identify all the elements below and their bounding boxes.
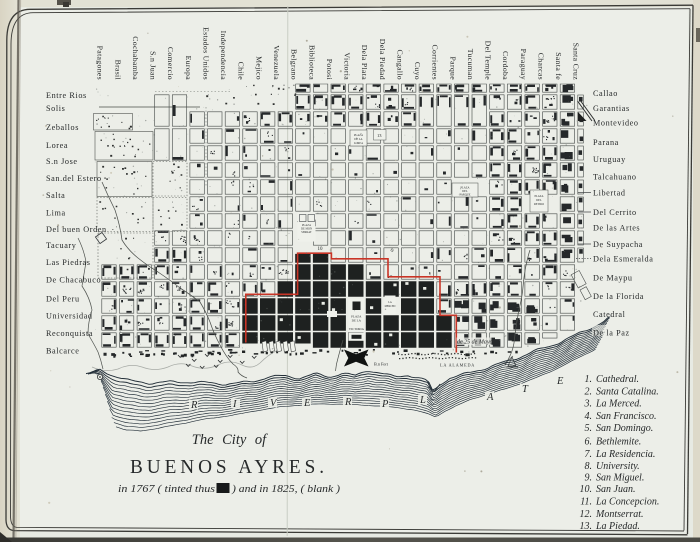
svg-text:S.n Juan: S.n Juan — [149, 51, 158, 80]
svg-text:University.: University. — [596, 461, 640, 472]
svg-text:Patagones: Patagones — [96, 46, 105, 80]
svg-text:Lorea: Lorea — [46, 141, 68, 150]
svg-text:Universidad: Universidad — [46, 312, 93, 321]
svg-text:Reconquista: Reconquista — [46, 329, 93, 338]
svg-text:De Maypu: De Maypu — [593, 274, 633, 283]
svg-text:Chile: Chile — [237, 62, 246, 81]
svg-text:Mejico: Mejico — [254, 56, 263, 80]
svg-text:Cangallo: Cangallo — [395, 49, 404, 80]
svg-text:Charcas: Charcas — [537, 53, 546, 80]
svg-text:Zeballos: Zeballos — [46, 123, 79, 132]
svg-text:Las Piedras: Las Piedras — [46, 258, 91, 267]
svg-text:7.: 7. — [585, 449, 593, 460]
svg-text:Del Temple: Del Temple — [484, 41, 493, 81]
svg-text:Salta: Salta — [46, 191, 65, 200]
svg-text:San Juan.: San Juan. — [596, 484, 635, 495]
svg-text:A: A — [486, 392, 494, 403]
svg-text:5.: 5. — [585, 423, 593, 434]
svg-text:Cathedral.: Cathedral. — [596, 374, 639, 385]
svg-text:Corrientes: Corrientes — [431, 45, 440, 80]
svg-text:Del Peru: Del Peru — [46, 295, 80, 304]
svg-text:Potosi: Potosi — [325, 59, 334, 81]
svg-text:San Francisco.: San Francisco. — [596, 411, 657, 422]
svg-text:3.: 3. — [584, 399, 593, 410]
svg-text:Balcarce: Balcarce — [46, 347, 79, 356]
svg-text:13.: 13. — [580, 521, 593, 532]
svg-text:De Chacabuco: De Chacabuco — [46, 276, 101, 285]
svg-text:DE LA: DE LA — [354, 138, 362, 141]
svg-text:P: P — [381, 399, 389, 410]
svg-text:Catedral: Catedral — [593, 310, 626, 319]
svg-text:Callao: Callao — [593, 89, 618, 98]
svg-text:Europa: Europa — [184, 56, 193, 81]
svg-text:LOREA: LOREA — [354, 142, 363, 145]
svg-text:Parana: Parana — [593, 138, 619, 147]
svg-text:DEL: DEL — [536, 199, 542, 202]
svg-text:B.n Fort: B.n Fort — [374, 362, 389, 367]
svg-text:8.: 8. — [585, 461, 593, 472]
svg-text:Paraguay: Paraguay — [519, 49, 528, 80]
svg-text:Dela Plata: Dela Plata — [360, 45, 369, 80]
svg-text:Cordoba: Cordoba — [501, 51, 510, 80]
svg-text:11.: 11. — [580, 497, 592, 508]
svg-text:Comercio: Comercio — [166, 47, 175, 80]
svg-text:in 1767 ( tinted thus: in 1767 ( tinted thus — [118, 483, 215, 495]
svg-text:VICTORIA: VICTORIA — [349, 327, 365, 331]
svg-text:Belgrano: Belgrano — [290, 49, 299, 80]
svg-text:10.: 10. — [580, 484, 593, 495]
svg-text:BUENOS AYRES.: BUENOS AYRES. — [130, 457, 328, 478]
svg-text:12.: 12. — [580, 509, 593, 520]
svg-text:LA: LA — [388, 301, 392, 304]
svg-text:Santa Cruz: Santa Cruz — [572, 43, 581, 81]
svg-text:La Residencia.: La Residencia. — [595, 449, 655, 460]
svg-text:Cuyo: Cuyo — [413, 62, 422, 80]
svg-text:DE LA: DE LA — [352, 319, 362, 323]
svg-text:Venezuela: Venezuela — [272, 45, 281, 80]
svg-text:SERRAT: SERRAT — [301, 231, 312, 234]
svg-text:Del Cerrito: Del Cerrito — [593, 208, 637, 217]
svg-text:Entre Rios: Entre Rios — [46, 91, 87, 100]
svg-text:de 25 de Mayo: de 25 de Mayo — [457, 340, 493, 346]
svg-text:San Miguel.: San Miguel. — [596, 473, 644, 484]
svg-text:Independencia: Independencia — [219, 31, 228, 81]
svg-text:Tucuman: Tucuman — [466, 49, 475, 80]
svg-text:PLAZA: PLAZA — [534, 195, 543, 198]
svg-text:Montevideo: Montevideo — [593, 119, 639, 128]
svg-text:De la Florida: De la Florida — [593, 292, 644, 301]
svg-text:Uruguay: Uruguay — [593, 155, 626, 164]
svg-text:Libertad: Libertad — [593, 189, 626, 198]
svg-text:Garantias: Garantias — [593, 104, 630, 113]
svg-text:Santa Catalina.: Santa Catalina. — [596, 387, 659, 398]
svg-text:Bethlemite.: Bethlemite. — [596, 437, 641, 448]
svg-text:San Domingo.: San Domingo. — [596, 423, 653, 434]
svg-text:RETIRO: RETIRO — [534, 203, 544, 206]
svg-text:De Suypacha: De Suypacha — [593, 240, 643, 249]
svg-text:R: R — [344, 397, 352, 408]
svg-text:Solis: Solis — [46, 104, 65, 113]
svg-text:De la Paz: De la Paz — [593, 329, 630, 338]
svg-text:9.: 9. — [585, 473, 593, 484]
svg-text:PLAZA: PLAZA — [354, 134, 363, 137]
svg-text:Talcahuano: Talcahuano — [593, 173, 637, 182]
svg-text:LA ALAMEDA: LA ALAMEDA — [440, 363, 475, 368]
svg-text:The City of: The City of — [192, 432, 268, 448]
svg-text:4.: 4. — [585, 411, 593, 422]
svg-text:Dela Esmeralda: Dela Esmeralda — [593, 255, 653, 264]
svg-text:Santa fe: Santa fe — [554, 52, 563, 80]
svg-text:Lima: Lima — [46, 209, 66, 218]
svg-text:6.: 6. — [585, 437, 593, 448]
svg-text:Montserrat.: Montserrat. — [595, 509, 644, 520]
svg-text:San.del Estero: San.del Estero — [46, 174, 102, 183]
svg-text:13: 13 — [377, 133, 382, 138]
svg-text:) and in 1825, ( blank ): ) and in 1825, ( blank ) — [231, 483, 340, 495]
svg-text:Del buen Orden: Del buen Orden — [46, 225, 107, 234]
svg-text:E: E — [556, 376, 564, 387]
svg-text:La Piedad.: La Piedad. — [595, 521, 640, 532]
svg-text:Tacuary: Tacuary — [46, 241, 77, 250]
svg-text:Brasil: Brasil — [113, 60, 122, 81]
svg-text:S.n Jose: S.n Jose — [46, 157, 78, 166]
svg-text:La Concepcion.: La Concepcion. — [595, 497, 659, 508]
svg-text:PARQUE: PARQUE — [460, 194, 471, 197]
svg-text:2.: 2. — [585, 387, 593, 398]
svg-text:Parque: Parque — [448, 57, 457, 81]
svg-text:L: L — [419, 395, 426, 406]
svg-text:De las Artes: De las Artes — [593, 224, 640, 233]
svg-text:La Merced.: La Merced. — [595, 399, 642, 410]
svg-text:Biblioteca: Biblioteca — [307, 45, 316, 80]
svg-text:Victoria: Victoria — [343, 53, 352, 81]
svg-text:Cochabamba: Cochabamba — [131, 36, 140, 80]
svg-text:E: E — [303, 398, 311, 409]
svg-text:1.: 1. — [585, 374, 593, 385]
svg-text:10: 10 — [318, 247, 324, 252]
svg-text:Estados Unidos: Estados Unidos — [202, 27, 211, 80]
svg-text:Dela Piedad: Dela Piedad — [378, 39, 387, 80]
svg-text:MERCED: MERCED — [385, 305, 396, 308]
svg-text:I: I — [232, 399, 237, 410]
svg-text:R: R — [190, 400, 198, 411]
